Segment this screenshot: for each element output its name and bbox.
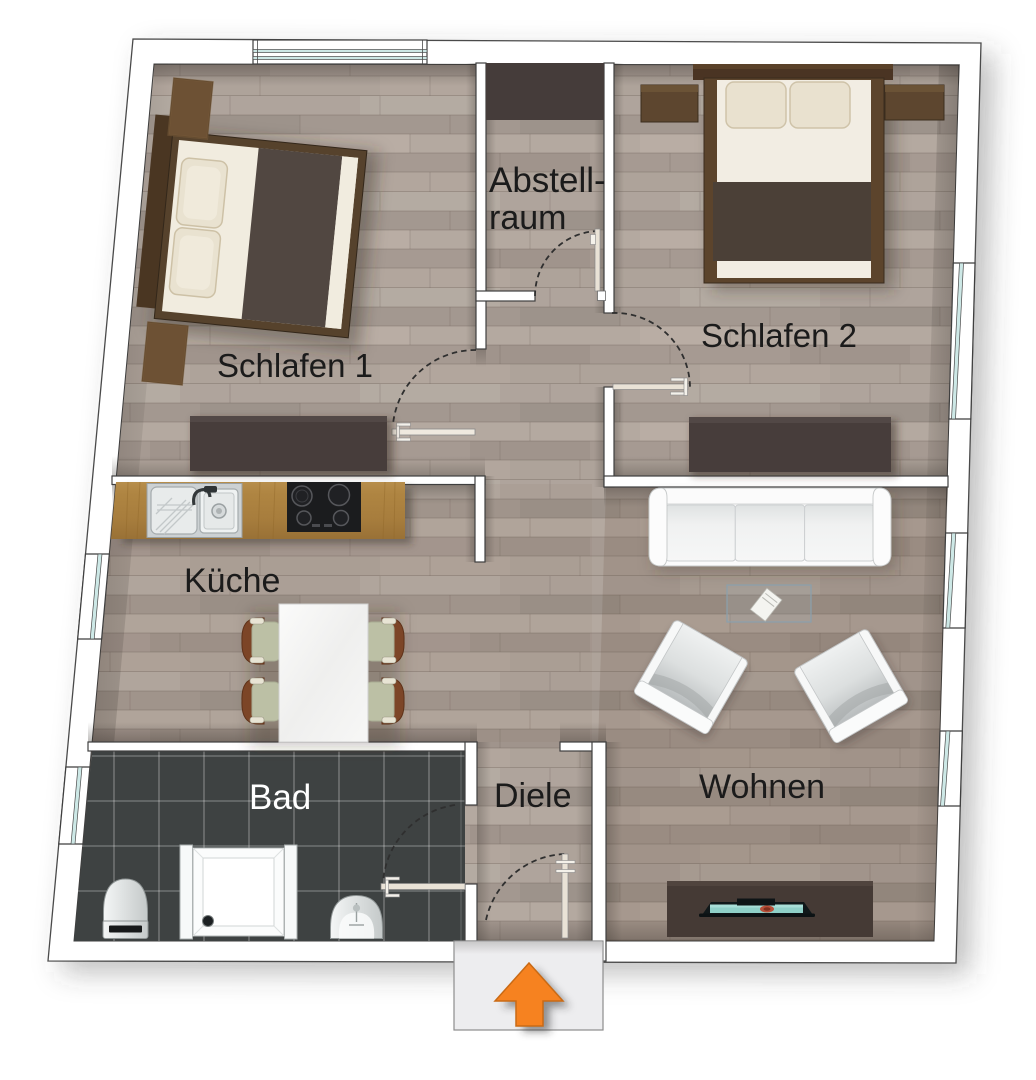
svg-text:Diele: Diele	[494, 777, 571, 815]
svg-text:Bad: Bad	[249, 778, 311, 817]
svg-text:Schlafen 1: Schlafen 1	[217, 347, 373, 384]
svg-text:Schlafen 2: Schlafen 2	[701, 317, 857, 354]
svg-text:Abstell-: Abstell-	[489, 161, 606, 200]
svg-text:Wohnen: Wohnen	[699, 768, 825, 806]
svg-text:Küche: Küche	[184, 562, 280, 600]
svg-text:raum: raum	[489, 199, 566, 237]
